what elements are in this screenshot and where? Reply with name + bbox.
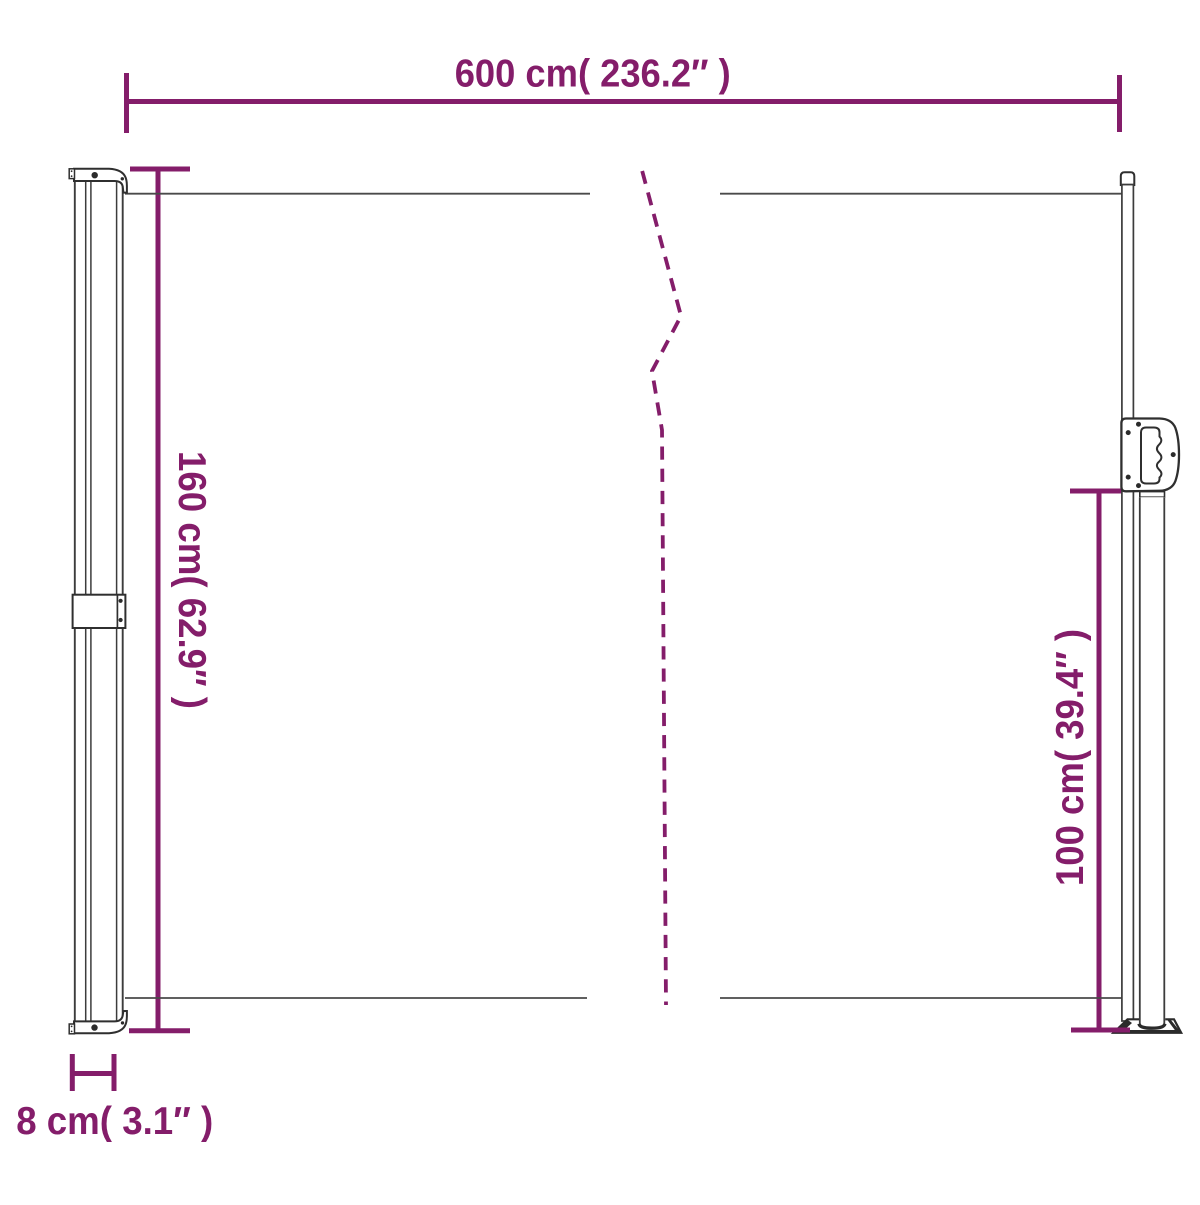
svg-text:8 cm( 3.1″ ): 8 cm( 3.1″ ) <box>16 1100 213 1143</box>
svg-text:160 cm( 62.9″ ): 160 cm( 62.9″ ) <box>170 451 213 709</box>
svg-text:600 cm( 236.2″ ): 600 cm( 236.2″ ) <box>455 53 731 96</box>
svg-text:100 cm( 39.4″ ): 100 cm( 39.4″ ) <box>1049 629 1092 886</box>
